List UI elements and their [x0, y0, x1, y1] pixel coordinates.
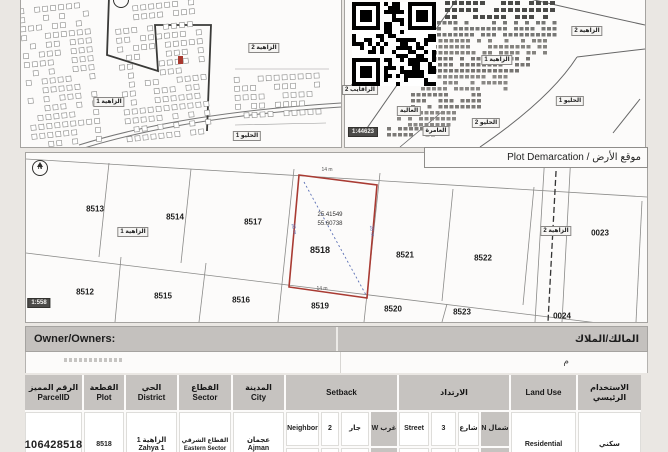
- header-district-ar: الحي: [142, 383, 162, 393]
- parcel-label-8514: 8514: [166, 213, 184, 222]
- selected-plot-outline: [289, 175, 377, 298]
- cell-irtidad-direction-north: شمال N: [481, 412, 509, 446]
- header-setback-en: Setback: [286, 375, 397, 410]
- area-label-helio1-left-map: الحليو 1: [233, 131, 261, 141]
- cell-landuse-ar: سكني: [578, 412, 641, 452]
- area-label-zahya2-right-map: الزاهية 2: [571, 26, 602, 36]
- plot-longitude: 55.60738: [317, 221, 342, 227]
- owner-label-en: Owner/Owners:: [34, 333, 115, 345]
- area-label-helio1-right-map: الحليو 1: [556, 96, 584, 106]
- area-label-zahya1-left-map: الزاهية 1: [93, 97, 124, 107]
- cell-landuse-en: Residential: [511, 412, 576, 452]
- area-label-zahya2-main-map: الزاهية 2: [540, 226, 571, 236]
- header-plot-ar: القطعة: [90, 383, 119, 393]
- cell-district-ar: الزاهية 1: [137, 437, 167, 445]
- cell-parcel-id: 106428518: [25, 412, 82, 452]
- selected-plot-number: 8518: [310, 245, 330, 255]
- header-city: المدينة City: [233, 375, 284, 410]
- cell-district-en: Zahya 1: [138, 445, 164, 452]
- header-landuse-en: Land Use: [511, 375, 576, 410]
- header-sector: القطاع Sector: [179, 375, 231, 410]
- owner-label-ar: المالك/الملاك: [575, 334, 639, 345]
- cell-sector: القطاع الشرقي Eastern Sector: [179, 412, 231, 452]
- demarcation-map-panel: N: [25, 152, 648, 323]
- cell-setback-row2-direction: [371, 448, 397, 452]
- cell-setback-row2-value: [321, 448, 339, 452]
- parcel-label-8522: 8522: [474, 254, 492, 263]
- cell-setback-row2-type-ar: [341, 448, 369, 452]
- plot-latitude: 25.41549: [317, 212, 342, 218]
- subject-plot-marker: [178, 56, 183, 64]
- overview-map-left-panel: [20, 0, 342, 148]
- owner-header-bar: Owner/Owners: المالك/الملاك: [25, 326, 648, 352]
- header-parcel-id: الرقم المميز ParcelID: [25, 375, 82, 410]
- cell-setback-value: 2: [321, 412, 339, 446]
- area-label-helio2: الحليو 2: [472, 118, 500, 128]
- header-sector-ar: القطاع: [191, 383, 219, 393]
- cell-irtidad-row2-value: [431, 448, 456, 452]
- cell-irtidad-value: 3: [431, 412, 456, 446]
- compass-icon-main-map: N: [32, 160, 48, 176]
- cell-irtidad-row2-type-ar: [458, 448, 479, 452]
- cell-city-en: Ajman: [248, 445, 269, 452]
- plot-top-length: 14 m: [321, 167, 332, 173]
- owner-header-left: Owner/Owners:: [26, 327, 336, 351]
- section-title-plot-demarcation: Plot Demarcation / موقع الأرض: [424, 147, 648, 168]
- scale-badge-overview: 1:44623: [348, 127, 378, 137]
- plot-bottom-length: 14 m: [316, 286, 327, 292]
- area-label-amerah: العامرة: [423, 126, 450, 136]
- plot-diagonal-dimension-line: [304, 182, 366, 295]
- cell-setback-row2-type: [286, 448, 319, 452]
- parcel-label-8523: 8523: [453, 308, 471, 317]
- plot-right-length: 28 m: [368, 225, 375, 237]
- header-landuse-en-label: Land Use: [525, 388, 561, 398]
- plot-details-table: الرقم المميز ParcelID القطعة Plot الحي D…: [25, 375, 641, 452]
- cell-irtidad-type-en: Street: [399, 412, 429, 446]
- owner-value-ar: م: [563, 356, 569, 367]
- area-label-raqaib2: الراقايب 2: [342, 85, 378, 95]
- header-district-en: District: [138, 393, 166, 403]
- cell-irtidad-row2-direction: [481, 448, 509, 452]
- cell-setback-type-en: Neighbor: [286, 412, 319, 446]
- owner-value-row: م: [25, 352, 648, 373]
- cell-irtidad-type-ar: شارع: [458, 412, 479, 446]
- cell-city-ar: عجمان: [247, 437, 270, 445]
- cadastral-map: [26, 153, 647, 322]
- cell-setback-type-ar: جار: [341, 412, 369, 446]
- area-label-zahya1-right-map: الزاهية 1: [481, 55, 512, 65]
- cell-city: عجمان Ajman: [233, 412, 284, 452]
- header-setback-ar: الارتداد: [399, 375, 509, 410]
- area-label-alia: العالية: [397, 106, 421, 116]
- owner-name-redacted: [64, 358, 124, 362]
- cell-irtidad-row2-type: [399, 448, 429, 452]
- header-city-en: City: [251, 393, 266, 403]
- owner-row-divider: [340, 352, 341, 373]
- cell-plot: 8518: [84, 412, 124, 452]
- parcel-label-8519: 8519: [311, 302, 329, 311]
- qr-code: [352, 2, 436, 86]
- parcel-label-0024: 0024: [553, 312, 571, 321]
- parcel-label-8516: 8516: [232, 296, 250, 305]
- parcel-label-8520: 8520: [384, 305, 402, 314]
- header-parcel-ar: الرقم المميز: [29, 383, 78, 393]
- parcel-label-8515: 8515: [154, 292, 172, 301]
- parcel-label-8513: 8513: [86, 205, 104, 214]
- compass-n-label: N: [38, 165, 42, 171]
- parcel-label-8521: 8521: [396, 251, 414, 260]
- parcel-label-0023: 0023: [591, 229, 609, 238]
- header-landuse-ar: الاستخدام الرئيسي: [578, 375, 641, 410]
- plot-demarcation-document: الزاهية 1 الزاهية 2 الحليو 1 الراقايب 2 …: [0, 0, 668, 452]
- street-map-sketch: [21, 0, 341, 147]
- header-district: الحي District: [126, 375, 177, 410]
- parcel-label-8517: 8517: [244, 218, 262, 227]
- area-label-zahya2-left-map: الزاهية 2: [248, 43, 279, 53]
- header-plot: القطعة Plot: [84, 375, 124, 410]
- header-plot-en: Plot: [96, 393, 111, 403]
- cell-sector-ar: القطاع الشرقي: [182, 437, 229, 445]
- parcel-label-8512: 8512: [76, 288, 94, 297]
- area-label-zahya1-main-map: الزاهية 1: [117, 227, 148, 237]
- scale-badge-main-map: 1:558: [27, 298, 50, 308]
- owner-header-right: المالك/الملاك: [338, 327, 648, 351]
- cell-setback-direction-west: غرب W: [371, 412, 397, 446]
- cell-sector-en: Eastern Sector: [184, 445, 226, 452]
- header-landuse-ar-label: الاستخدام الرئيسي: [584, 383, 635, 403]
- header-sector-en: Sector: [193, 393, 218, 403]
- header-setback-ar-label: الارتداد: [440, 388, 468, 398]
- header-setback-en-label: Setback: [326, 388, 357, 398]
- cell-district: الزاهية 1 Zahya 1: [126, 412, 177, 452]
- header-parcel-en: ParcelID: [37, 393, 69, 403]
- header-city-ar: المدينة: [245, 383, 272, 393]
